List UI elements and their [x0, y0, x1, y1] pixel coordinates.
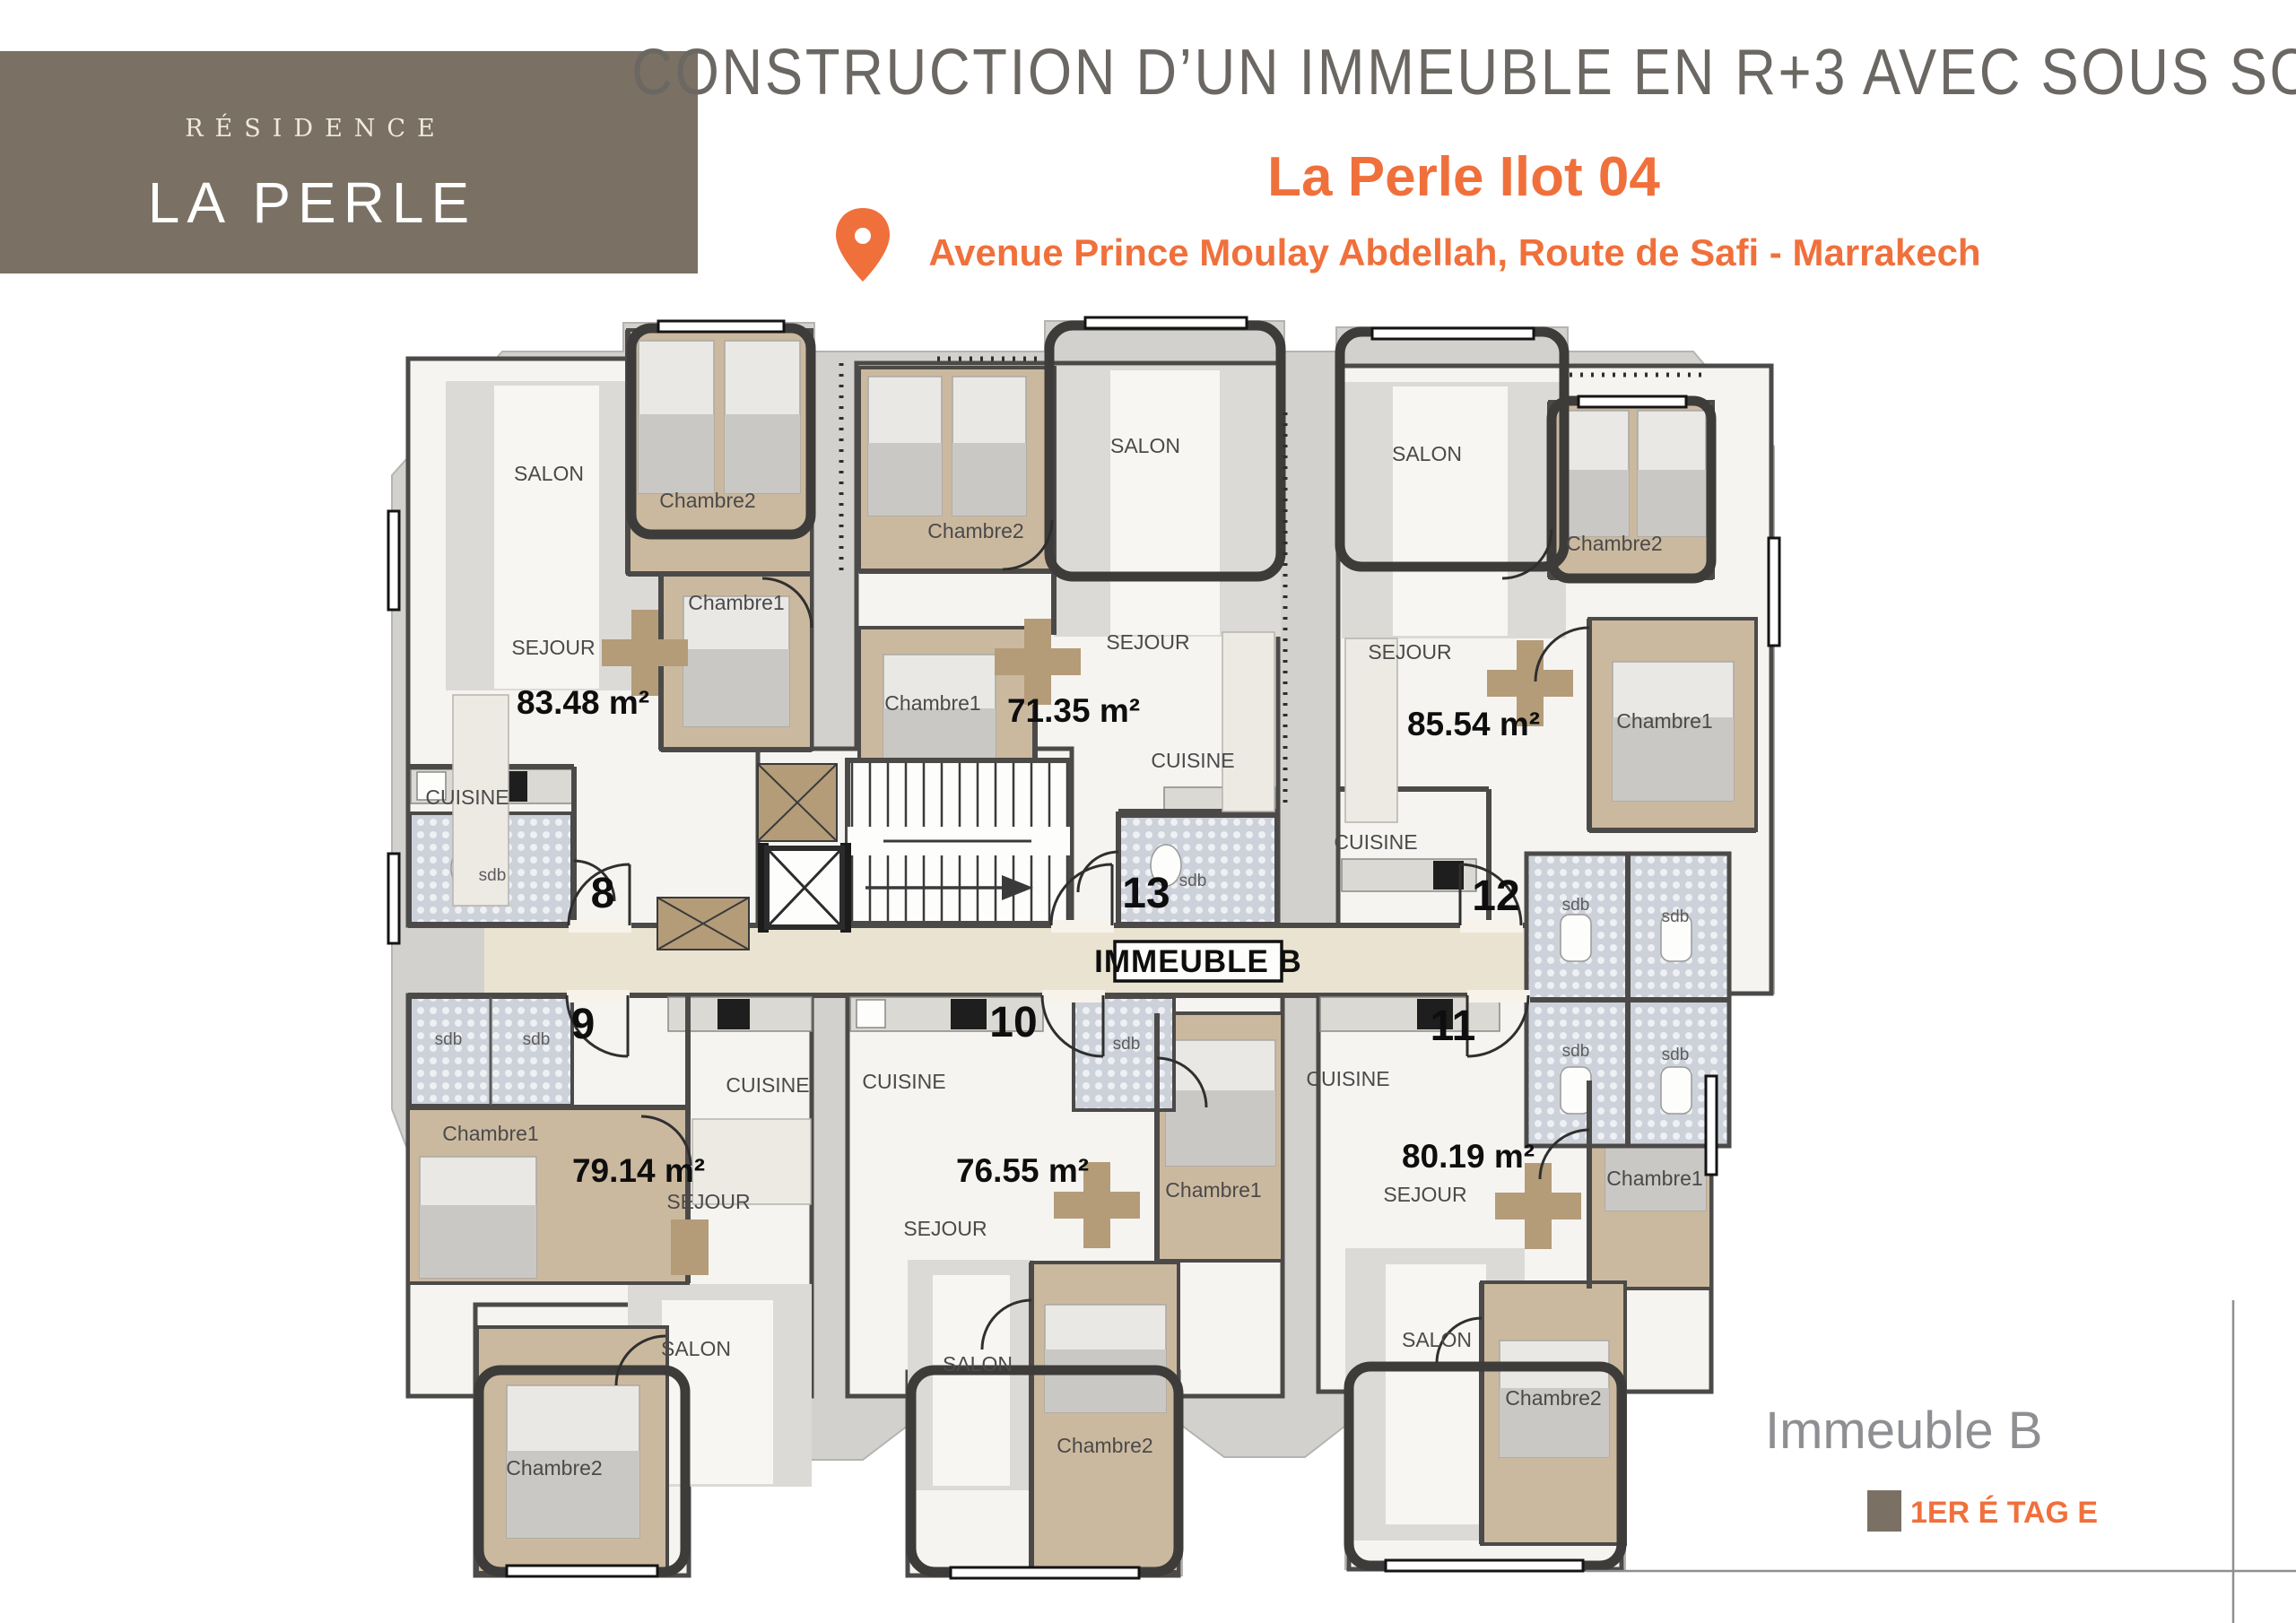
room-label-salon: SALON	[1402, 1328, 1472, 1351]
floor-plan-poster: RÉSIDENCE LA PERLE CONSTRUCTION D’UN IMM…	[0, 0, 2296, 1623]
brand-logo-box	[0, 51, 698, 273]
unit-number-12: 12	[1472, 872, 1519, 920]
project-address: Avenue Prince Moulay Abdellah, Route de …	[928, 231, 1980, 273]
room-label-chambre1: Chambre1	[1606, 1167, 1702, 1190]
unit-area-9: 79.14 m²	[572, 1152, 705, 1189]
unit-area-12: 85.54 m²	[1407, 706, 1540, 742]
room-label-cuisine: CUISINE	[862, 1070, 945, 1093]
room-label-sdb: sdb	[1662, 907, 1690, 926]
corridor	[408, 925, 1525, 995]
building-badge: IMMEUBLE B	[1094, 942, 1302, 981]
map-pin-icon	[836, 208, 890, 282]
room-label-sejour: SEJOUR	[1106, 630, 1189, 654]
room-label-sejour: SEJOUR	[1383, 1183, 1466, 1206]
unit-number-9: 9	[571, 1001, 596, 1048]
room-label-sdb: sdb	[523, 1030, 551, 1049]
elevator	[758, 843, 851, 933]
room-label-chambre2: Chambre2	[506, 1456, 602, 1480]
room-label-cuisine: CUISINE	[1306, 1067, 1389, 1090]
room-label-cuisine: CUISINE	[1334, 830, 1417, 854]
room-label-cuisine: CUISINE	[726, 1073, 809, 1097]
unit-area-11: 80.19 m²	[1402, 1138, 1535, 1175]
room-label-chambre2: Chambre2	[1505, 1386, 1601, 1410]
project-subtitle: La Perle Ilot 04	[1267, 146, 1660, 208]
legend-color-swatch	[1867, 1490, 1901, 1532]
room-label-salon: SALON	[1392, 442, 1462, 465]
unit-number-13: 13	[1122, 870, 1170, 917]
unit-number-11: 11	[1431, 1002, 1476, 1050]
legend-floor-label: 1ER É TAG E	[1910, 1496, 2098, 1530]
brand-residence-label: RÉSIDENCE	[185, 113, 447, 143]
room-label-chambre2: Chambre2	[1057, 1434, 1152, 1457]
building-badge-label: IMMEUBLE B	[1094, 944, 1302, 979]
floor-plan: IMMEUBLE B SALON SALON SALON SALON SALON…	[388, 317, 1779, 1578]
unit-number-8: 8	[591, 870, 615, 917]
room-label-cuisine: CUISINE	[1151, 749, 1234, 772]
room-label-chambre1: Chambre1	[1165, 1178, 1261, 1202]
room-label-sejour: SEJOUR	[1368, 640, 1451, 664]
room-label-sdb: sdb	[1562, 1042, 1590, 1061]
room-label-cuisine: CUISINE	[425, 785, 509, 809]
unit-number-10: 10	[989, 999, 1037, 1046]
page-title: CONSTRUCTION D’UN IMMEUBLE EN R+3 AVEC S…	[631, 37, 2296, 108]
room-label-sdb: sdb	[1113, 1035, 1141, 1054]
header: RÉSIDENCE LA PERLE CONSTRUCTION D’UN IMM…	[0, 37, 2296, 282]
room-label-sejour: SEJOUR	[903, 1217, 987, 1240]
footer-building-name: Immeuble B	[1765, 1402, 2042, 1460]
unit-area-10: 76.55 m²	[956, 1152, 1089, 1189]
room-label-sdb: sdb	[435, 1030, 463, 1049]
unit-area-8: 83.48 m²	[517, 684, 649, 721]
room-label-sdb: sdb	[1662, 1046, 1690, 1064]
unit-area-13: 71.35 m²	[1007, 692, 1140, 729]
staircase	[848, 760, 1070, 924]
room-label-salon: SALON	[943, 1352, 1013, 1376]
room-label-salon: SALON	[514, 462, 584, 485]
brand-name-label: LA PERLE	[148, 170, 476, 235]
room-label-salon: SALON	[1110, 434, 1180, 457]
room-label-chambre2: Chambre2	[927, 519, 1023, 542]
room-label-chambre1: Chambre1	[1616, 709, 1712, 733]
room-label-salon: SALON	[661, 1337, 731, 1360]
room-label-chambre1: Chambre1	[688, 591, 784, 614]
room-label-sdb: sdb	[1562, 896, 1590, 915]
room-label-chambre1: Chambre1	[884, 691, 980, 715]
room-label-chambre2: Chambre2	[1566, 532, 1662, 555]
room-label-sdb: sdb	[479, 866, 507, 885]
room-label-chambre2: Chambre2	[659, 489, 755, 512]
room-label-sejour: SEJOUR	[666, 1190, 750, 1213]
room-label-chambre1: Chambre1	[442, 1122, 538, 1145]
room-label-sdb: sdb	[1179, 872, 1207, 890]
room-label-sejour: SEJOUR	[511, 636, 595, 659]
